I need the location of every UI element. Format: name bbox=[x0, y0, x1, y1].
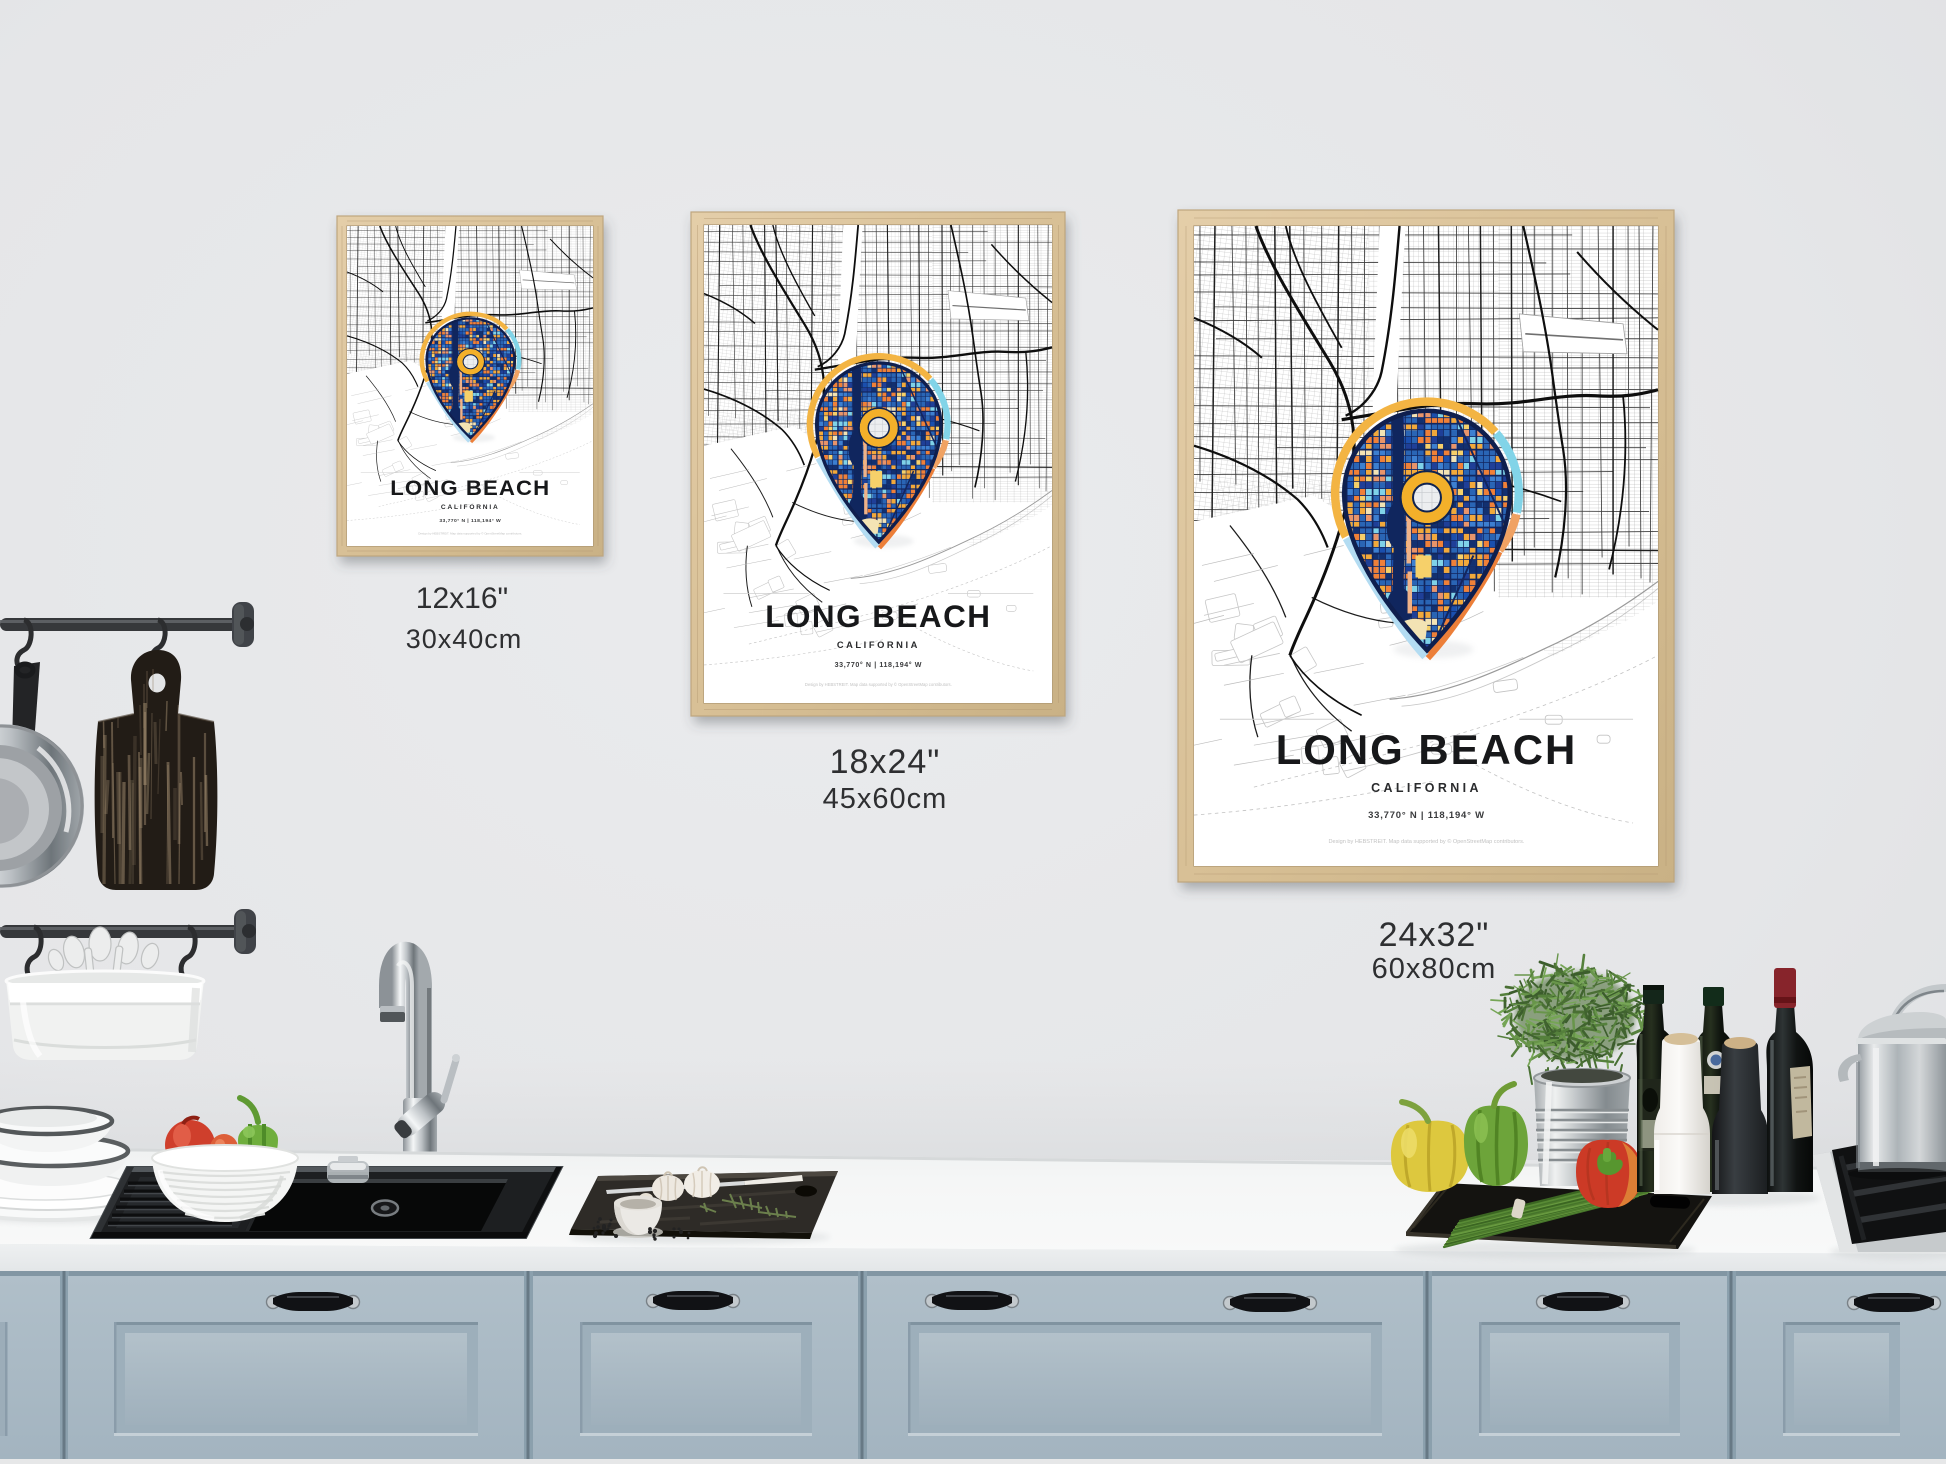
svg-text:12x16": 12x16" bbox=[416, 582, 508, 615]
svg-text:45x60cm: 45x60cm bbox=[823, 783, 948, 815]
svg-text:18x24": 18x24" bbox=[830, 743, 941, 781]
svg-text:60x80cm: 60x80cm bbox=[1372, 953, 1497, 985]
svg-text:30x40cm: 30x40cm bbox=[406, 624, 523, 654]
svg-text:24x32": 24x32" bbox=[1379, 916, 1490, 954]
